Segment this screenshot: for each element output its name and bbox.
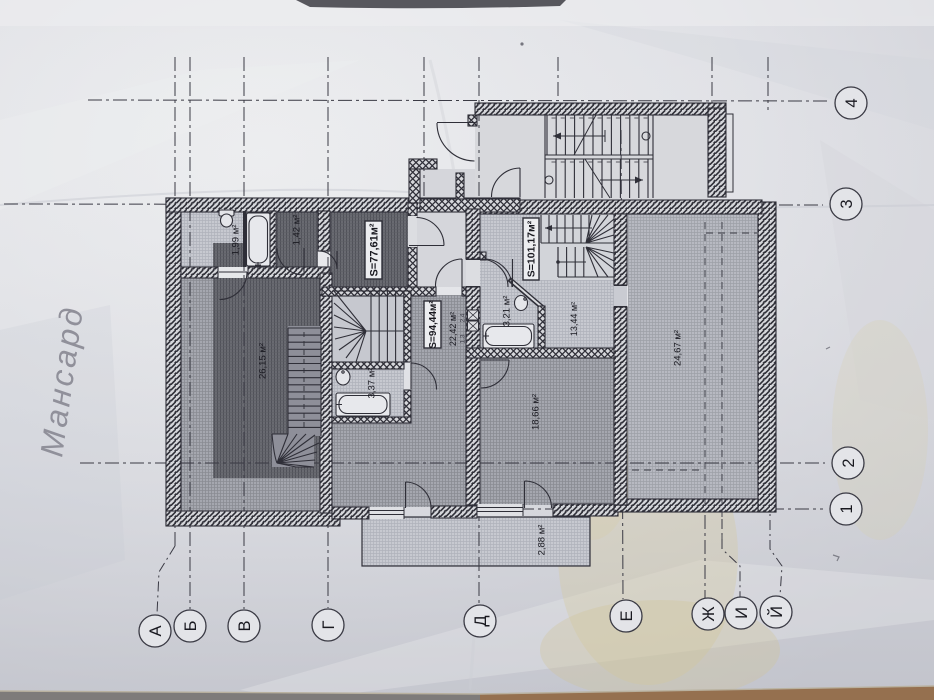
svg-text:24,67 м²: 24,67 м² <box>672 330 683 366</box>
svg-text:S=101,17м²: S=101,17м² <box>525 220 537 277</box>
svg-text:18,66 м²: 18,66 м² <box>530 394 541 430</box>
svg-text:А: А <box>147 625 165 636</box>
svg-text:4: 4 <box>843 98 861 107</box>
svg-text:И: И <box>733 607 751 619</box>
svg-text:Й: Й <box>767 606 786 618</box>
svg-text:26,15 м²: 26,15 м² <box>257 343 268 379</box>
svg-text:S=77,61м²: S=77,61м² <box>369 223 381 276</box>
svg-text:13,44 м²: 13,44 м² <box>569 302 579 336</box>
svg-text:S=94,44м²: S=94,44м² <box>428 300 439 349</box>
svg-text:1,42 м²: 1,42 м² <box>291 215 302 246</box>
svg-text:2,4: 2,4 <box>459 313 466 322</box>
svg-text:Ж: Ж <box>700 606 718 622</box>
svg-text:22,42 м²: 22,42 м² <box>448 312 458 346</box>
svg-text:3,21 м²: 3,21 м² <box>501 296 512 327</box>
svg-text:Б: Б <box>182 621 200 632</box>
svg-text:В: В <box>236 620 254 631</box>
svg-text:3,37 м²: 3,37 м² <box>366 368 377 399</box>
svg-text:Д: Д <box>472 615 490 626</box>
svg-text:3: 3 <box>838 199 856 208</box>
svg-text:2: 2 <box>840 458 858 467</box>
svg-text:Г: Г <box>320 620 338 629</box>
svg-text:Е: Е <box>618 610 636 621</box>
svg-text:1,99 м²: 1,99 м² <box>230 225 241 256</box>
svg-text:2,88 м²: 2,88 м² <box>536 525 547 556</box>
svg-text:1: 1 <box>838 504 856 513</box>
svg-text:1,3: 1,3 <box>459 334 466 343</box>
